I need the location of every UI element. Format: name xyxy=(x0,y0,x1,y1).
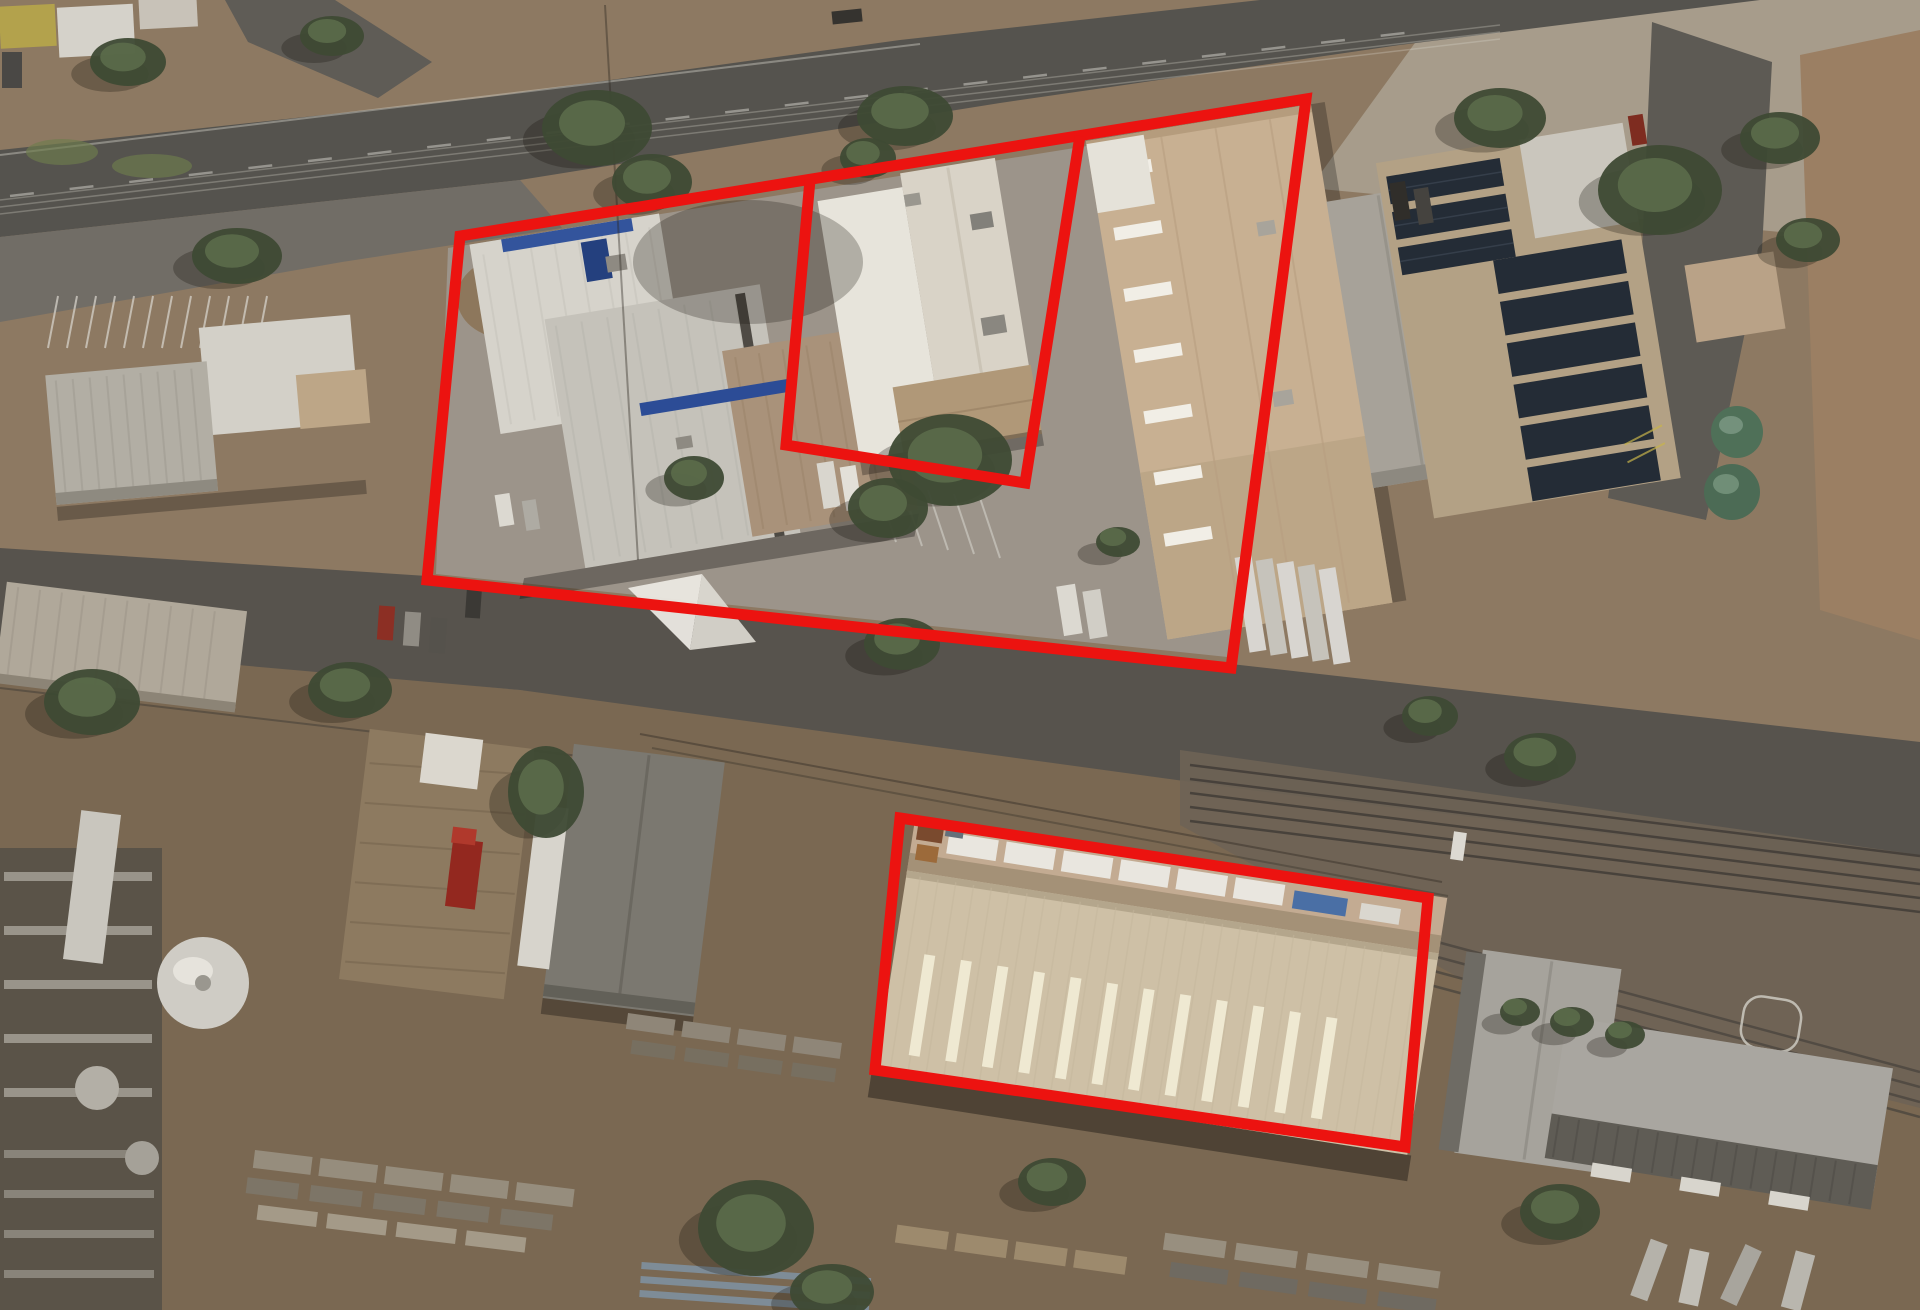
tree-highlight xyxy=(1027,1163,1068,1192)
tree-highlight xyxy=(518,759,564,814)
tree-highlight xyxy=(1513,738,1556,767)
storage-tank-small xyxy=(125,1141,159,1175)
shed-northwest xyxy=(296,369,370,429)
tree-highlight xyxy=(1408,699,1442,723)
pallet-crate xyxy=(915,844,939,863)
tank-highlight xyxy=(1719,416,1743,434)
vehicle-red-car xyxy=(377,605,395,640)
rooftop-unit xyxy=(605,254,627,273)
rooftop-unit xyxy=(1256,220,1276,237)
rooftop-ac-unit xyxy=(904,192,922,206)
storage-tank-small xyxy=(75,1066,119,1110)
tree-highlight xyxy=(671,460,707,486)
tree-highlight xyxy=(1467,95,1522,131)
bush-highlight xyxy=(1554,1008,1580,1026)
rooftop-unit xyxy=(1272,389,1294,407)
bush-highlight xyxy=(1503,999,1527,1016)
bush-highlight xyxy=(1608,1022,1632,1039)
warehouse-brown-south xyxy=(339,726,535,999)
tree-highlight xyxy=(1784,222,1822,248)
tree-highlight xyxy=(308,19,346,43)
tree-highlight xyxy=(1618,158,1692,212)
rooftop-ac-unit xyxy=(981,314,1008,336)
east-edge-dirt xyxy=(1800,30,1920,640)
tree-highlight xyxy=(320,668,370,702)
vehicle-car xyxy=(429,617,447,653)
aerial-imagery-canvas xyxy=(0,0,1920,1310)
white-corner-structure xyxy=(1086,135,1155,213)
pipe-runs xyxy=(4,980,152,989)
tree-highlight xyxy=(859,485,907,521)
vehicle-car xyxy=(403,611,421,646)
house-roof-gray xyxy=(138,0,198,29)
pipe-runs xyxy=(4,1190,154,1198)
tree-highlight xyxy=(100,43,146,72)
house-roof-yellow xyxy=(0,4,57,49)
rooftop-unit xyxy=(675,435,693,449)
tree-shadow-large xyxy=(633,200,863,324)
tree-highlight xyxy=(58,677,116,717)
white-roof-section xyxy=(420,733,484,790)
tree-highlight xyxy=(205,234,259,268)
tank-center-cap xyxy=(195,975,211,991)
lawn-strip-2 xyxy=(112,154,192,178)
tree-highlight xyxy=(1100,528,1126,546)
tree-highlight xyxy=(846,141,880,165)
pipe-runs xyxy=(4,1270,154,1278)
lawn-strip xyxy=(26,139,98,165)
tree-highlight xyxy=(1751,117,1799,148)
parked-car-nw xyxy=(2,52,22,88)
tree-highlight xyxy=(559,100,625,146)
pipe-runs xyxy=(4,1230,154,1238)
tree-highlight xyxy=(716,1194,786,1252)
aerial-photo-screenshot xyxy=(0,0,1920,1310)
tank-highlight xyxy=(1713,474,1739,494)
tree-highlight xyxy=(802,1270,852,1304)
tree-highlight xyxy=(623,160,671,194)
pipe-runs xyxy=(4,1034,152,1043)
tree-highlight xyxy=(1531,1190,1579,1224)
tree-highlight xyxy=(871,93,929,129)
vehicle-truck-cab xyxy=(451,827,477,846)
